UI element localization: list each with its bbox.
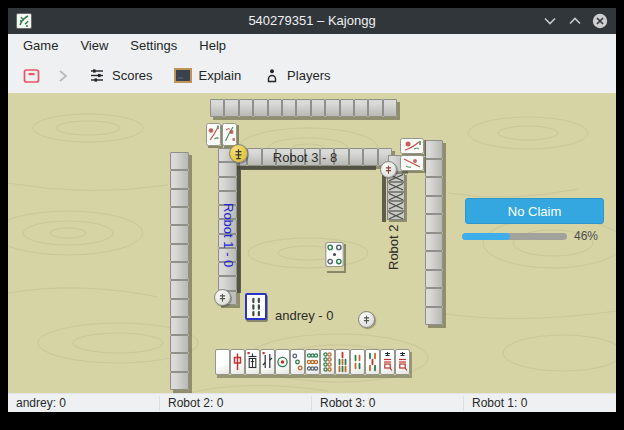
- hand-tile-south-wind[interactable]: [245, 349, 260, 375]
- player-hand: [215, 349, 410, 375]
- wall-tile-back: [368, 99, 382, 117]
- maximize-icon[interactable]: [567, 13, 583, 29]
- wall-tile-back: [425, 288, 443, 307]
- status-robot1: Robot 1: 0: [464, 396, 616, 411]
- hand-tile-bamboo-7[interactable]: [335, 349, 350, 375]
- concealed-tile-edge: [387, 211, 405, 220]
- menu-help[interactable]: Help: [188, 34, 237, 58]
- wall-tile-back: [354, 99, 368, 117]
- wall-tile-back: [268, 99, 282, 117]
- hand-tile-character-7[interactable]: [380, 349, 395, 375]
- red-window-minus-icon: [22, 67, 40, 85]
- hand-tile-north-wind[interactable]: [260, 349, 275, 375]
- status-andrey: andrey: 0: [8, 396, 160, 411]
- blackboard-icon: [174, 67, 192, 85]
- wind-disc-robot2: [380, 161, 397, 178]
- wall-tile-back: [296, 99, 310, 117]
- hand-tile-circle-3[interactable]: [290, 349, 305, 375]
- wall-tile-back: [170, 225, 189, 243]
- wall-tile-back: [425, 270, 443, 289]
- wood-grain-texture: [8, 93, 616, 393]
- wall-tile-back: [425, 140, 443, 159]
- wall-tile-back: [340, 99, 354, 117]
- menubar: Game View Settings Help: [8, 34, 616, 58]
- hand-tile-character-9[interactable]: [395, 349, 410, 375]
- chevron-right-icon: [54, 67, 72, 85]
- no-claim-button[interactable]: No Claim: [465, 198, 604, 224]
- wall-outer-left: [170, 152, 189, 390]
- statusbar: andrey: 0 Robot 2: 0 Robot 3: 0 Robot 1:…: [8, 393, 616, 412]
- explain-button[interactable]: Explain: [174, 67, 241, 85]
- hand-tile-bamboo-4[interactable]: [350, 349, 365, 375]
- scores-button[interactable]: Scores: [88, 67, 152, 85]
- scores-list-icon: [88, 67, 106, 85]
- window-title: 540279351 – Kajongg: [8, 8, 616, 34]
- wind-disc-andrey: [358, 311, 375, 328]
- wall-tile-back: [170, 317, 189, 335]
- wind-disc-robot1: [214, 289, 231, 306]
- status-robot2: Robot 2: 0: [160, 396, 312, 411]
- wall-tile-back: [170, 299, 189, 317]
- bonus-tile-flower: [400, 138, 424, 154]
- hand-tile-bamboo-5[interactable]: [365, 349, 380, 375]
- hand-tile-white-dragon[interactable]: [215, 349, 230, 375]
- wall-robot2-concealed: [387, 173, 405, 220]
- progress-percent-label: 46%: [574, 229, 598, 243]
- abort-game-button[interactable]: [22, 67, 40, 85]
- titlebar: 540279351 – Kajongg: [8, 8, 616, 34]
- hand-tile-circle-1[interactable]: [275, 349, 290, 375]
- wall-tile-back: [425, 214, 443, 233]
- desktop: { "window": { "title": "540279351 – Kajo…: [0, 0, 624, 430]
- wall-tile-back: [325, 99, 339, 117]
- wind-disc-east: [229, 144, 248, 163]
- wall-tile-back: [425, 196, 443, 215]
- wall-tile-back: [170, 372, 189, 390]
- last-discard-tile-circle-5: [325, 242, 344, 271]
- wall-tile-back: [170, 335, 189, 353]
- concealed-tile-edge: [387, 201, 405, 210]
- player-label-robot1: Robot 1 - 0: [221, 203, 236, 267]
- bonus-tile-flower: [222, 123, 237, 146]
- scores-label: Scores: [112, 68, 152, 83]
- hand-tile-circle-8[interactable]: [320, 349, 335, 375]
- menu-settings[interactable]: Settings: [119, 34, 188, 58]
- player-icon: [263, 67, 281, 85]
- minimize-icon[interactable]: [542, 13, 558, 29]
- wall-tile-back: [253, 99, 267, 117]
- wall-tile-back: [170, 152, 189, 170]
- bonus-tile-flower: [206, 123, 221, 146]
- wall-tile-back: [425, 251, 443, 270]
- hand-tile-circle-9[interactable]: [305, 349, 320, 375]
- wall-tile-back: [218, 177, 237, 191]
- inner-wall-edge-top: [222, 166, 376, 170]
- wall-tile-back: [210, 99, 224, 117]
- inner-wall-edge-left: [237, 170, 241, 293]
- wall-tile-back: [239, 99, 253, 117]
- claim-timeout-progress: 46%: [462, 229, 612, 243]
- concealed-tile-edge: [387, 192, 405, 201]
- progress-fill: [462, 233, 510, 240]
- focused-discard-tile-bamboo-2: [245, 293, 267, 320]
- wall-tile-back: [170, 244, 189, 262]
- wall-tile-back: [170, 170, 189, 188]
- menu-game[interactable]: Game: [12, 34, 69, 58]
- kajongg-window: 540279351 – Kajongg Game View Settings H…: [8, 8, 616, 412]
- bonus-tile-flower: [400, 155, 424, 171]
- hand-tile-red-dragon[interactable]: [230, 349, 245, 375]
- wall-tile-back: [170, 280, 189, 298]
- wall-tile-back: [383, 99, 397, 117]
- step-forward-button[interactable]: [54, 67, 72, 85]
- progress-track: [462, 233, 567, 240]
- wall-tile-back: [425, 177, 443, 196]
- wall-tile-back: [425, 159, 443, 178]
- wall-tile-back: [170, 262, 189, 280]
- status-robot3: Robot 3: 0: [312, 396, 464, 411]
- wall-outer-right: [425, 140, 443, 325]
- wall-tile-back: [425, 233, 443, 252]
- players-label: Players: [287, 68, 330, 83]
- wall-tile-back: [170, 207, 189, 225]
- wall-tile-back: [224, 99, 238, 117]
- wall-tile-back: [170, 189, 189, 207]
- wall-tile-back: [170, 353, 189, 371]
- wall-tile-back: [311, 99, 325, 117]
- game-board: Robot 3 - 8 Robot 1 - 0 Robot 2 - 8: [8, 93, 616, 393]
- player-label-andrey: andrey - 0: [275, 308, 334, 323]
- close-icon[interactable]: [592, 13, 608, 29]
- wall-tile-back: [282, 99, 296, 117]
- concealed-tile-edge: [387, 182, 405, 191]
- menu-view[interactable]: View: [69, 34, 119, 58]
- toolbar: Scores Explain Players: [8, 58, 616, 93]
- players-button[interactable]: Players: [263, 67, 330, 85]
- explain-label: Explain: [198, 68, 241, 83]
- wall-tile-back: [425, 307, 443, 326]
- wall-tile-back: [218, 162, 237, 176]
- wall-outer-top: [210, 99, 397, 117]
